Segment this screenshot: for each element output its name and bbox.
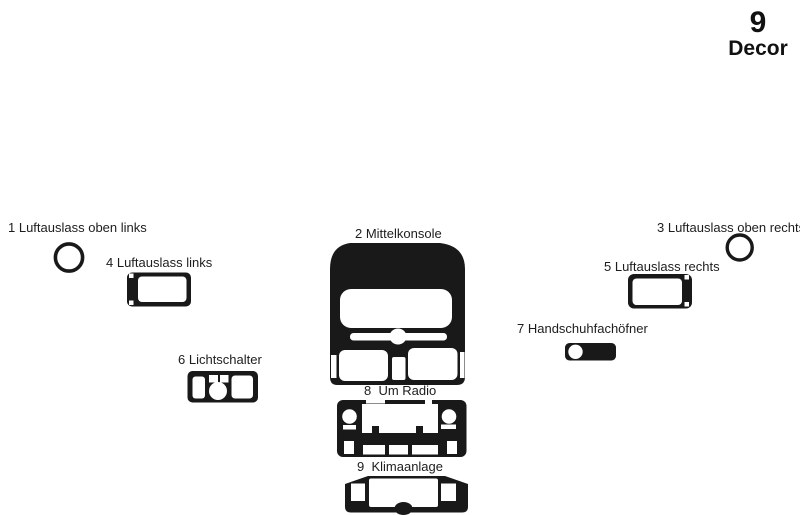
part-shape-radio-surround — [336, 398, 468, 459]
part-shape-air-vent-left — [126, 271, 193, 308]
part-label-mittelkonsole: 2 Mittelkonsole — [355, 227, 442, 241]
part-label-luftauslass-oben-links: 1 Luftauslass oben links — [8, 221, 147, 235]
part-label-klimaanlage: 9 Klimaanlage — [357, 460, 443, 474]
part-shape-air-vent-right — [627, 272, 694, 310]
header-block: 9 Decor — [722, 8, 794, 59]
part-label-handschuhfachoefner: 7 Handschuhfachöfner — [517, 322, 648, 336]
part-label-luftauslass-links: 4 Luftauslass links — [106, 256, 212, 270]
part-label-lichtschalter: 6 Lichtschalter — [178, 353, 262, 367]
part-shape-glovebox-opener — [563, 342, 618, 362]
part-shape-center-console — [328, 241, 468, 387]
part-shape-air-vent-ring-right — [725, 233, 755, 263]
part-shape-climate-control-surround — [342, 475, 471, 515]
part-shape-light-switch-panel — [186, 369, 260, 404]
kit-number: 9 — [722, 8, 794, 38]
part-shape-air-vent-ring-left — [52, 240, 86, 275]
dash-trim-diagram: 9 Decor 1 Luftauslass oben links 2 Mitte… — [0, 0, 800, 515]
kit-title: Decor — [722, 38, 794, 59]
